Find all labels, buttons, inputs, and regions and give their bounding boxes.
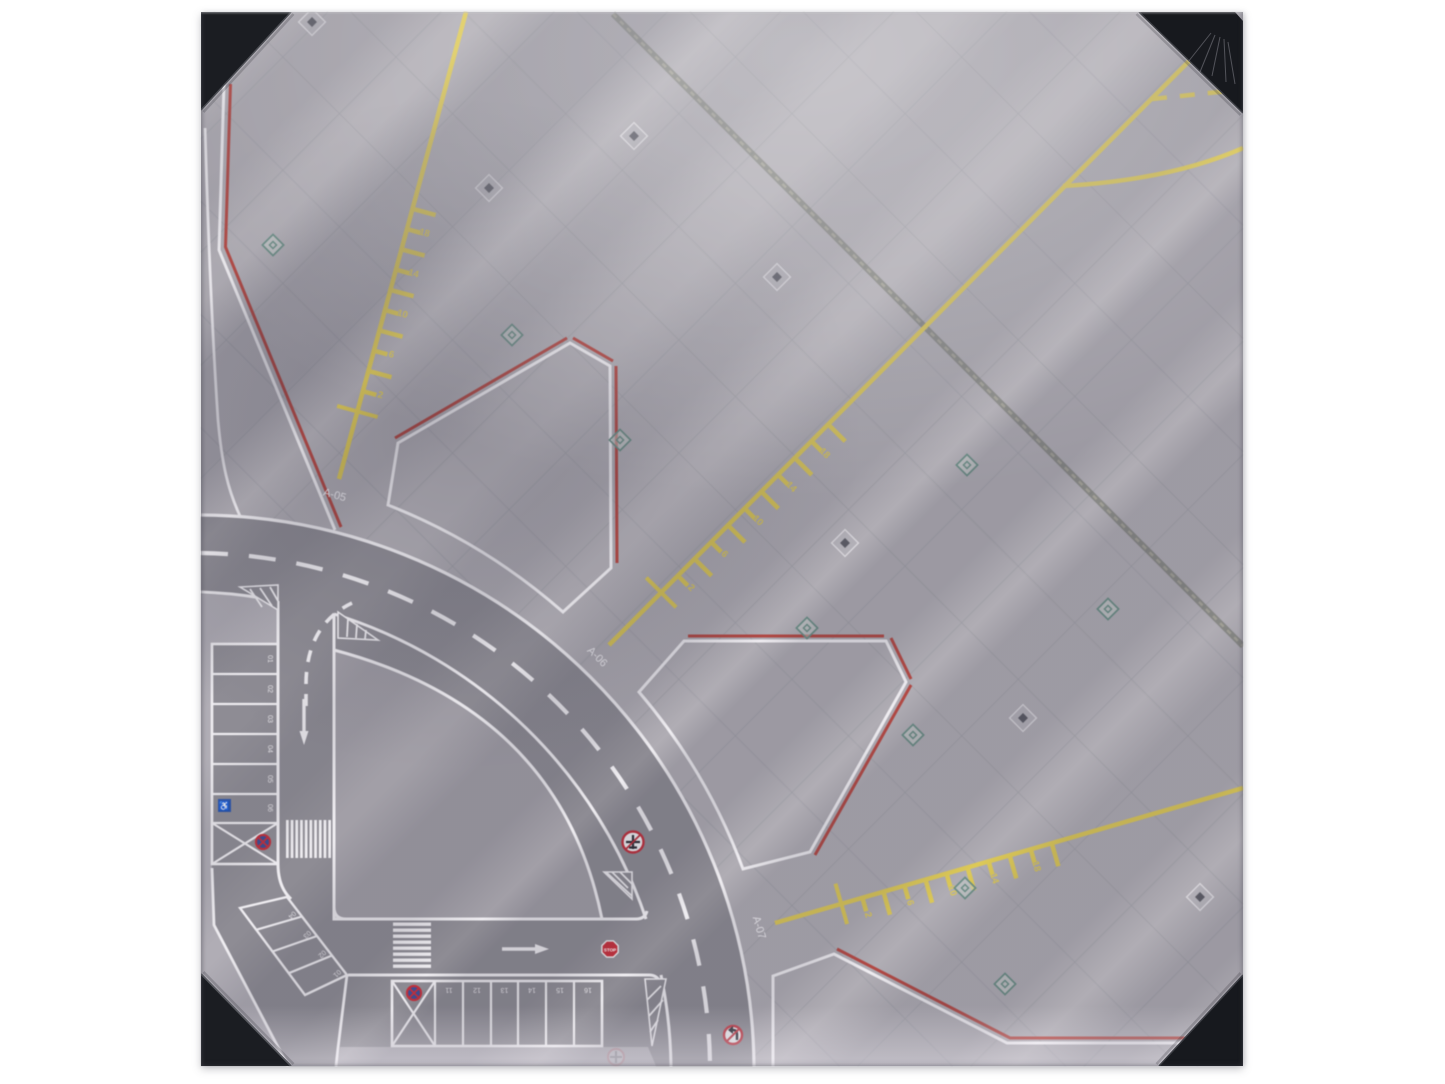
svg-text:STOP: STOP	[604, 948, 616, 953]
svg-text:♿: ♿	[219, 800, 230, 811]
svg-text:06: 06	[266, 804, 273, 812]
svg-text:16: 16	[584, 986, 592, 993]
svg-text:02: 02	[266, 685, 273, 693]
svg-text:11: 11	[445, 986, 452, 993]
svg-text:03: 03	[266, 715, 273, 723]
svg-text:01: 01	[266, 655, 273, 663]
svg-text:05: 05	[266, 775, 273, 783]
svg-text:15: 15	[556, 986, 564, 993]
svg-text:14: 14	[528, 986, 536, 993]
svg-text:12: 12	[473, 986, 481, 993]
svg-text:04: 04	[266, 745, 273, 753]
svg-text:13: 13	[501, 986, 509, 993]
